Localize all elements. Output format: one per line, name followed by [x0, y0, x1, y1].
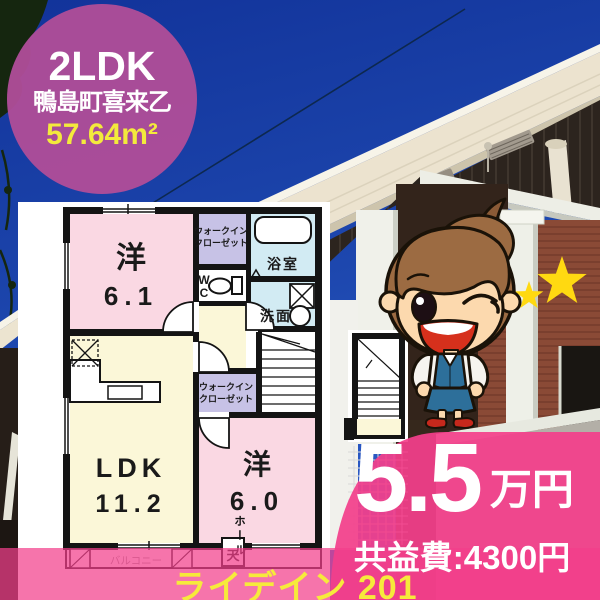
property-badge: 2LDK 鴨島町喜来乙 57.64m² — [7, 4, 197, 194]
property-name: ライデイン 201 — [90, 560, 500, 600]
listing-image: 洋 6.1 ウォークイン クローゼット 浴室 W C 洗面 ウォークイン クロー… — [0, 0, 600, 600]
layout-type: 2LDK — [48, 45, 155, 88]
location-name: 鴨島町喜来乙 — [33, 88, 171, 118]
rent-amount: 5.5 — [354, 430, 480, 525]
rent-unit: 万円 — [490, 456, 574, 517]
rent-price: 5.5 万円 — [330, 430, 598, 525]
floor-area: 57.64m² — [46, 118, 158, 153]
